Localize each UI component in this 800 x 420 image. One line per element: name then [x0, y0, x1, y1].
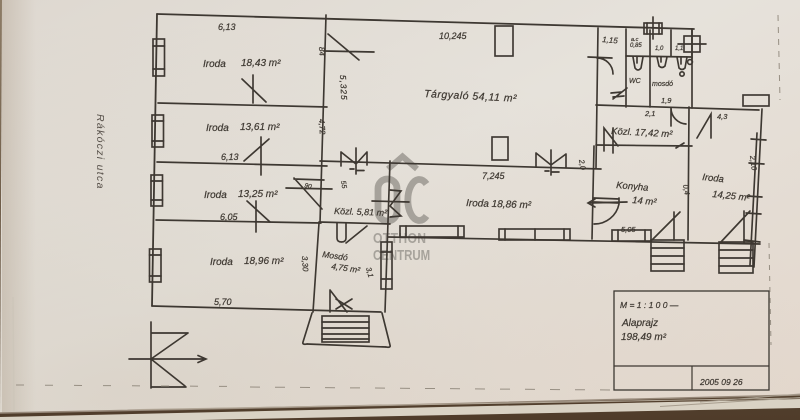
svg-text:Iroda: Iroda: [210, 257, 233, 268]
svg-text:Iroda: Iroda: [702, 172, 725, 185]
svg-text:a.c: a.c: [631, 37, 639, 43]
svg-text:M = 1 : 1 0 0 —: M = 1 : 1 0 0 —: [620, 300, 679, 310]
svg-text:Iroda: Iroda: [203, 59, 226, 70]
svg-text:18,43 m²: 18,43 m²: [241, 58, 281, 69]
svg-text:13,61 m²: 13,61 m²: [240, 122, 280, 133]
svg-text:6,13: 6,13: [218, 22, 236, 32]
svg-text:55: 55: [339, 180, 347, 189]
svg-text:5,70: 5,70: [214, 297, 232, 307]
svg-text:Alaprajz: Alaprajz: [621, 318, 658, 329]
svg-text:0,4: 0,4: [681, 184, 692, 196]
svg-text:13,25 m²: 13,25 m²: [238, 189, 278, 200]
svg-text:7,245: 7,245: [482, 171, 506, 181]
svg-text:14 m²: 14 m²: [632, 195, 658, 208]
svg-text:18,96 m²: 18,96 m²: [244, 256, 284, 267]
svg-text:6,13: 6,13: [221, 152, 239, 162]
svg-text:0,85: 0,85: [630, 43, 642, 49]
svg-text:1,9: 1,9: [661, 96, 672, 105]
svg-text:1,1: 1,1: [675, 46, 683, 52]
svg-text:Iroda: Iroda: [206, 123, 229, 134]
svg-text:mosdó: mosdó: [652, 81, 673, 88]
svg-text:5,325: 5,325: [338, 75, 349, 101]
svg-text:WC: WC: [629, 78, 642, 85]
svg-text:1,0: 1,0: [655, 46, 664, 52]
svg-text:84: 84: [317, 47, 326, 57]
svg-text:Iroda: Iroda: [204, 190, 227, 201]
svg-text:4,3: 4,3: [717, 112, 728, 121]
svg-text:Közl. 5,81 m²: Közl. 5,81 m²: [334, 206, 388, 218]
svg-text:2,1: 2,1: [644, 109, 655, 118]
svg-text:10,245: 10,245: [439, 31, 468, 41]
svg-text:1,15: 1,15: [602, 35, 619, 45]
svg-text:3,30: 3,30: [300, 256, 310, 273]
svg-text:5,05: 5,05: [621, 225, 636, 234]
svg-text:2005 09 26: 2005 09 26: [699, 377, 743, 387]
svg-text:4,72: 4,72: [317, 119, 327, 136]
svg-text:Rákóczi utca: Rákóczi utca: [94, 114, 106, 190]
svg-text:6,05: 6,05: [220, 212, 239, 222]
svg-text:Iroda 18,86 m²: Iroda 18,86 m²: [466, 198, 532, 211]
svg-text:198,49 m²: 198,49 m²: [621, 332, 667, 343]
